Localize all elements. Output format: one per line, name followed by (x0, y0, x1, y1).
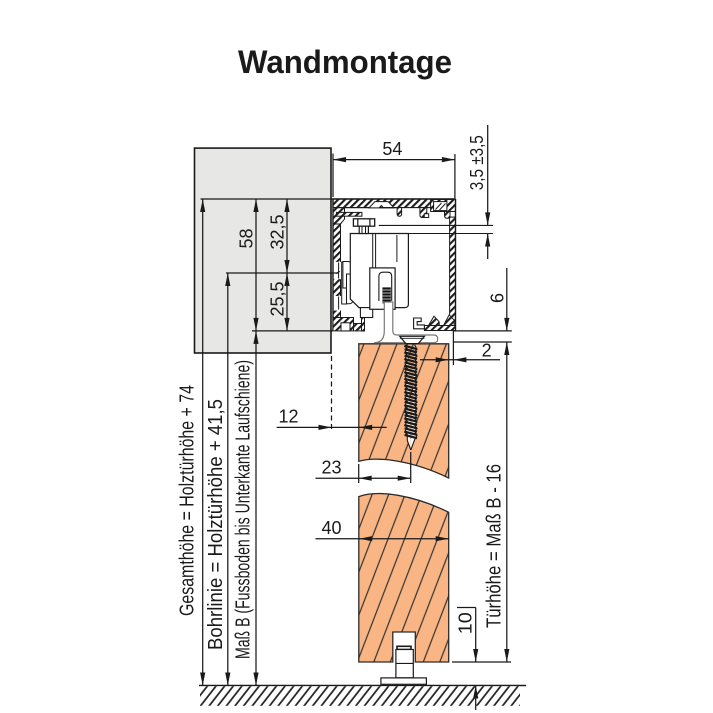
svg-text:Bohrlinie = Holztürhöhe + 41,5: Bohrlinie = Holztürhöhe + 41,5 (204, 399, 227, 650)
svg-text:23: 23 (321, 458, 341, 478)
svg-text:6: 6 (488, 293, 508, 303)
svg-text:Türhöhe = Maß B - 16: Türhöhe = Maß B - 16 (484, 464, 506, 628)
svg-text:54: 54 (382, 139, 402, 159)
svg-text:Gesamthöhe = Holztürhöhe + 74: Gesamthöhe = Holztürhöhe + 74 (176, 385, 199, 616)
svg-text:10: 10 (456, 612, 476, 634)
svg-text:3,5 ±3,5: 3,5 ±3,5 (467, 135, 487, 190)
svg-text:Wandmontage: Wandmontage (238, 44, 452, 80)
svg-text:32,5: 32,5 (268, 214, 288, 249)
svg-text:12: 12 (278, 407, 298, 427)
svg-text:58: 58 (237, 228, 257, 248)
svg-text:40: 40 (321, 518, 341, 538)
svg-text:25,5: 25,5 (268, 281, 288, 316)
svg-text:Maß B (Fussboden bis Unterkant: Maß B (Fussboden bis Unterkante Laufschi… (232, 360, 255, 659)
svg-text:2: 2 (482, 340, 492, 360)
